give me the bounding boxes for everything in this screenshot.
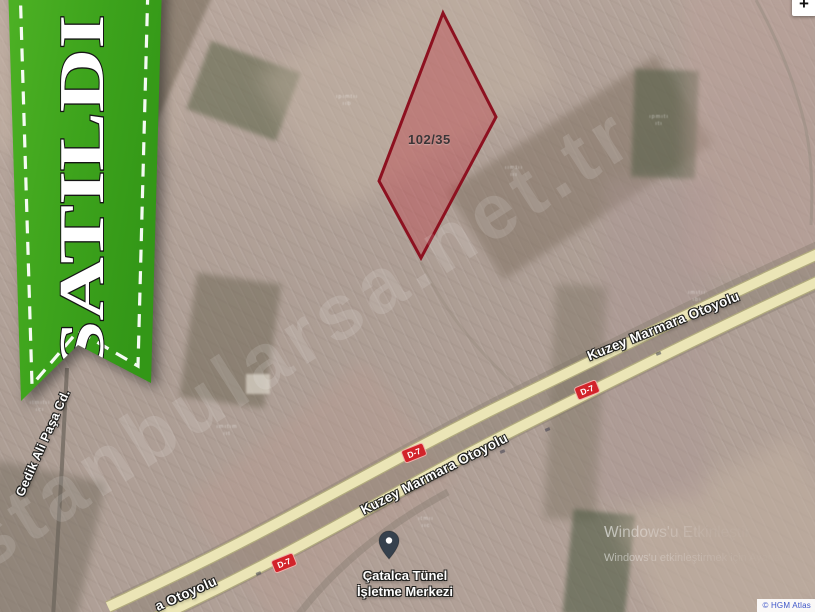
faint-label-line: ıımtıı bbox=[490, 165, 538, 172]
pin-icon bbox=[379, 531, 399, 559]
poi-label: Çatalca Tünel İşletme Merkezi bbox=[330, 568, 480, 600]
faint-field-label: ıpımtııııb bbox=[323, 94, 371, 108]
windows-watermark-subtitle: Windows'u etkinleştirmek için Ayarlar'a … bbox=[604, 552, 815, 564]
faint-label-line: ııc bbox=[402, 523, 450, 530]
faint-label-line: ııt bbox=[203, 431, 251, 438]
windows-watermark-title: Windows'u Etkinleştir bbox=[604, 524, 750, 542]
poi-label-line2: İşletme Merkezi bbox=[330, 584, 480, 600]
faint-label-line: ıpımtıı bbox=[323, 94, 371, 101]
faint-label-line: ııb bbox=[323, 101, 371, 108]
map-viewport[interactable]: 102/35 istanbularsa.net.tr ıpımtııııb ıt… bbox=[0, 0, 815, 612]
map-attribution: © HGM Atlas bbox=[757, 599, 815, 612]
faint-label-line: ıpmıtı bbox=[635, 114, 683, 121]
faint-field-label: ıtmııııc bbox=[402, 516, 450, 530]
parcel-number-label: 102/35 bbox=[408, 132, 451, 147]
faint-label-line: ımıtım bbox=[203, 424, 251, 431]
faint-label-line: ımıtıı bbox=[673, 290, 721, 297]
faint-field-label: ıpmıtııtı bbox=[635, 114, 683, 128]
poi-label-line1: Çatalca Tünel bbox=[330, 568, 480, 584]
faint-label-line: ıtmıı bbox=[402, 516, 450, 523]
zoom-in-button[interactable]: + bbox=[792, 0, 815, 16]
pin-dot-icon bbox=[386, 537, 392, 543]
faint-field-label: ımıtımııt bbox=[203, 424, 251, 438]
poi-pin[interactable] bbox=[379, 531, 399, 561]
sold-ribbon-shape: SATILDI bbox=[5, 0, 162, 404]
faint-field-label: ıımtııııı bbox=[490, 165, 538, 179]
sold-ribbon-text: SATILDI bbox=[46, 15, 117, 370]
faint-label-line: ııı bbox=[490, 172, 538, 179]
sold-ribbon-decoration: SATILDI bbox=[5, 0, 162, 404]
faint-label-line: ıtı bbox=[635, 121, 683, 128]
